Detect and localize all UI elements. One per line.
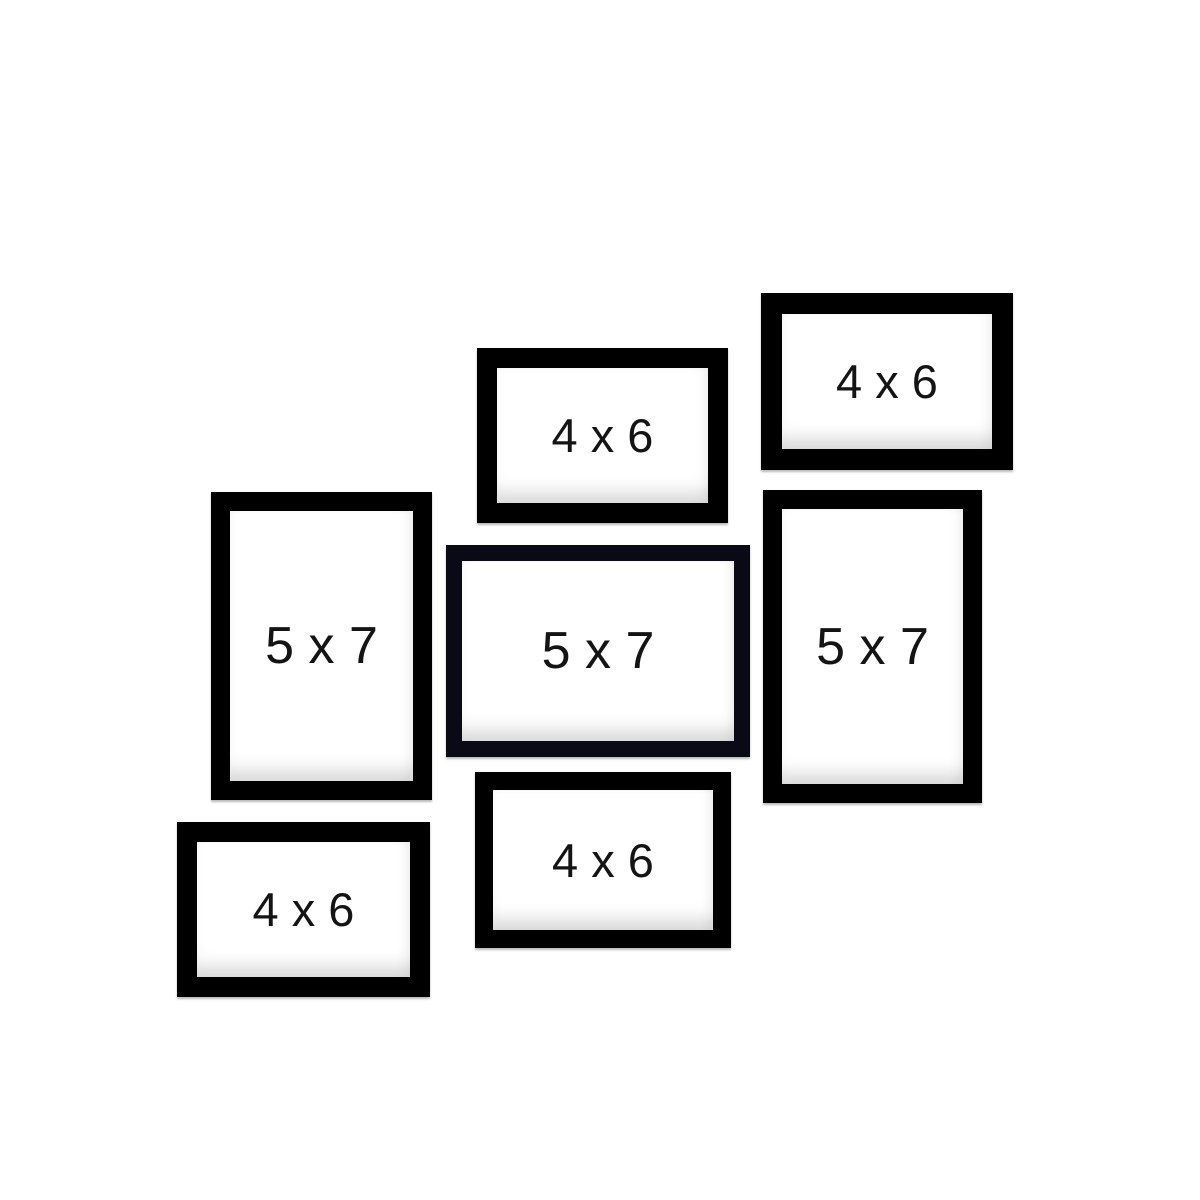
frame-size-label: 4 x 6 [552,833,654,888]
frame-collage: 4 x 6 4 x 6 5 x 7 5 x 7 5 x 7 4 x 6 4 x … [0,0,1200,1200]
frame-opening: 5 x 7 [230,511,413,781]
frame-bottom-left-4x6: 4 x 6 [177,822,430,997]
frame-size-label: 5 x 7 [265,616,378,676]
frame-center-5x7: 5 x 7 [446,545,750,757]
frame-right-5x7: 5 x 7 [763,490,982,803]
frame-left-5x7: 5 x 7 [211,492,432,800]
frame-top-middle-4x6: 4 x 6 [477,348,728,523]
frame-size-label: 4 x 6 [253,882,355,937]
frame-opening: 5 x 7 [462,561,734,741]
frame-opening: 4 x 6 [197,842,410,977]
frame-top-right-4x6: 4 x 6 [761,293,1013,470]
frame-opening: 5 x 7 [782,509,963,784]
frame-size-label: 5 x 7 [542,621,655,681]
frame-opening: 4 x 6 [497,368,708,503]
frame-opening: 4 x 6 [493,790,713,930]
frame-size-label: 5 x 7 [816,617,929,677]
frame-opening: 4 x 6 [782,314,992,449]
frame-size-label: 4 x 6 [836,354,938,409]
frame-size-label: 4 x 6 [552,408,654,463]
frame-bottom-middle-4x6: 4 x 6 [475,772,731,948]
